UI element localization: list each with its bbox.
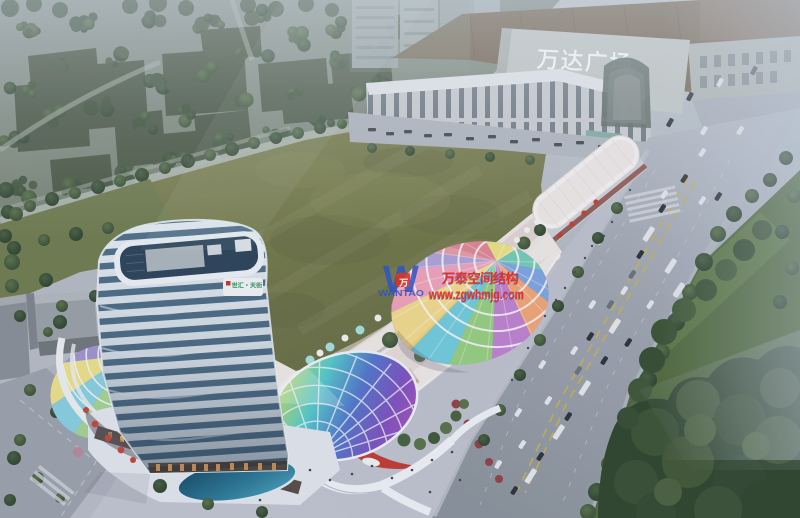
svg-text:WANTAO: WANTAO [378, 288, 424, 298]
svg-text:www.zgwhmjg.com: www.zgwhmjg.com [428, 287, 524, 302]
